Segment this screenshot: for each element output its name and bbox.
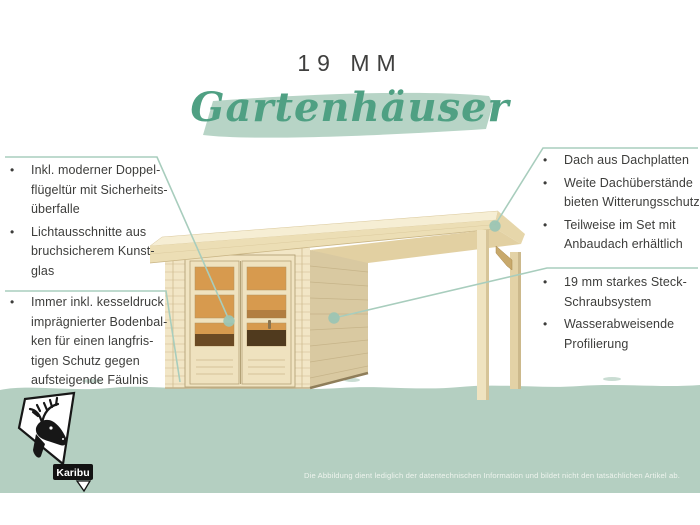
list-item: • Immer inkl. kesseldruck imprägnierter …: [10, 293, 180, 391]
list-item: • Teilweise im Set mit Anbaudach erhältl…: [543, 216, 699, 255]
bullet-dot-icon: •: [10, 223, 31, 282]
bullet-dot-icon: •: [10, 293, 31, 391]
callout-dot-roof: [489, 220, 500, 231]
callout-text: Lichtausschnitte aus bruchsicherem Kunst…: [31, 223, 155, 282]
bullet-dot-icon: •: [10, 161, 31, 220]
callout-dot-wall: [328, 312, 339, 323]
list-item: • Inkl. moderner Doppel- flügeltür mit S…: [10, 161, 180, 220]
door-glass-panes-right: [247, 267, 286, 346]
list-item: • Weite Dachüberstände bieten Witterungs…: [543, 174, 699, 213]
callout-text: Wasserabweisende Profilierung: [564, 315, 674, 354]
canopy-posts: [477, 230, 521, 400]
page-title: 19 MM: [0, 50, 700, 77]
callout-block-top-left: • Inkl. moderner Doppel- flügeltür mit S…: [10, 161, 180, 284]
bullet-dot-icon: •: [543, 273, 564, 312]
double-door: [185, 255, 295, 387]
banner-script-text: Gartenhäuser: [0, 84, 700, 131]
callout-text: Weite Dachüberstände bieten Witterungssc…: [564, 174, 700, 213]
bullet-dot-icon: •: [543, 216, 564, 255]
callout-text: Immer inkl. kesseldruck imprägnierter Bo…: [31, 293, 167, 391]
list-item: • Lichtausschnitte aus bruchsicherem Kun…: [10, 223, 180, 282]
callout-dot-door: [223, 315, 234, 326]
callout-block-bottom-right: • 19 mm starkes Steck- Schraubsystem • W…: [543, 273, 699, 357]
list-item: • Dach aus Dachplatten: [543, 151, 699, 171]
infographic-canvas: Karibu 19 MM Gartenhäuser • Inkl. modern…: [0, 0, 700, 525]
bullet-dot-icon: •: [543, 315, 564, 354]
callout-block-top-right: • Dach aus Dachplatten • Weite Dachübers…: [543, 151, 699, 258]
callout-text: 19 mm starkes Steck- Schraubsystem: [564, 273, 687, 312]
logo-brand-text: Karibu: [56, 467, 89, 479]
garden-house-illustration: [150, 211, 525, 400]
callout-text: Dach aus Dachplatten: [564, 151, 689, 171]
bullet-dot-icon: •: [543, 174, 564, 213]
knee-brace: [496, 246, 512, 270]
disclaimer-text: Die Abbildung dient lediglich der datent…: [290, 471, 694, 480]
list-item: • 19 mm starkes Steck- Schraubsystem: [543, 273, 699, 312]
door-handle: [268, 320, 271, 329]
list-item: • Wasserabweisende Profilierung: [543, 315, 699, 354]
callout-text: Inkl. moderner Doppel- flügeltür mit Sic…: [31, 161, 168, 220]
callout-block-bottom-left: • Immer inkl. kesseldruck imprägnierter …: [10, 293, 180, 394]
bullet-dot-icon: •: [543, 151, 564, 171]
door-glass-panes-left: [195, 267, 234, 346]
callout-text: Teilweise im Set mit Anbaudach erhältlic…: [564, 216, 683, 255]
